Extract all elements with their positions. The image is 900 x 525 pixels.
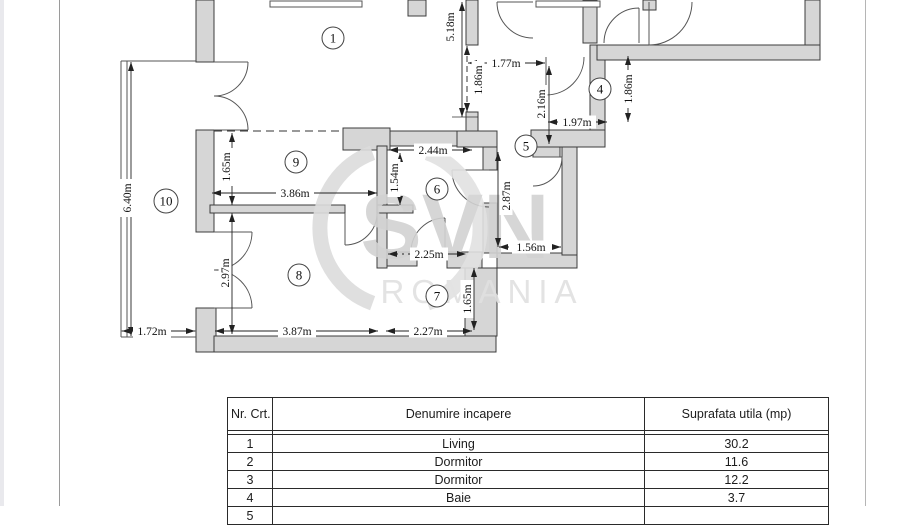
- cell-name: Dormitor: [273, 471, 645, 489]
- dimension-label: 1.77m: [491, 58, 520, 70]
- cell-area: 3.7: [645, 489, 829, 507]
- cell-name: Living: [273, 435, 645, 453]
- room-number-1: 1: [322, 27, 344, 49]
- cell-name: Baie: [273, 489, 645, 507]
- dimension: 1.86m: [464, 46, 485, 112]
- room-number-6: 6: [426, 178, 448, 200]
- room-number-9: 9: [285, 151, 307, 173]
- cell-area: 30.2: [645, 435, 829, 453]
- header-suprafata: Suprafata utila (mp): [645, 398, 829, 431]
- table-row: 4 Baie 3.7: [228, 489, 829, 507]
- watermark-region: ROMANIA: [380, 273, 583, 310]
- dimension-label: 5.18m: [445, 12, 457, 41]
- cell-name: Dormitor: [273, 453, 645, 471]
- header-nr-crt: Nr. Crt.: [228, 398, 273, 431]
- svg-text:5: 5: [523, 139, 530, 154]
- svg-text:4: 4: [597, 82, 604, 97]
- cell-nr: 2: [228, 453, 273, 471]
- svg-text:7: 7: [434, 289, 441, 304]
- cell-area: 11.6: [645, 453, 829, 471]
- cell-nr: 4: [228, 489, 273, 507]
- dimension-label: 1.86m: [473, 65, 485, 94]
- door-top-corridor: [604, 8, 639, 43]
- svg-text:9: 9: [293, 155, 300, 170]
- svg-text:10: 10: [160, 194, 173, 209]
- door-room4: [546, 57, 584, 95]
- cell-area: [645, 507, 829, 525]
- cell-name: [273, 507, 645, 525]
- table-header-row: Nr. Crt. Denumire incapere Suprafata uti…: [228, 398, 829, 431]
- room-number-8: 8: [288, 264, 310, 286]
- dimension-label: 1.56m: [516, 242, 545, 254]
- dimension-label: 1.65m: [221, 152, 233, 181]
- table-row: 2 Dormitor 11.6: [228, 453, 829, 471]
- room-number-7: 7: [426, 285, 448, 307]
- dimension-label: 2.27m: [413, 326, 442, 338]
- double-door-living: [214, 62, 248, 130]
- dimension-label: 2.16m: [536, 89, 548, 118]
- svn-watermark: SVN ROMANIA: [320, 153, 584, 310]
- dimension: 3.86m: [212, 187, 377, 201]
- room-number-4: 4: [589, 78, 611, 100]
- room-number-10: 10: [154, 189, 178, 213]
- table-row: 1 Living 30.2: [228, 435, 829, 453]
- dimension-label: 2.97m: [220, 258, 232, 287]
- dimension-label: 1.65m: [462, 284, 474, 313]
- page-left-margin: [0, 0, 4, 506]
- room-number-5: 5: [515, 135, 537, 157]
- dimension: 2.97m: [219, 213, 236, 334]
- dimension-label: 2.25m: [414, 249, 443, 261]
- svg-text:1: 1: [330, 31, 337, 46]
- dimension: 1.65m: [220, 133, 236, 205]
- dimension-label: 1.54m: [389, 163, 401, 192]
- table-row: 3 Dormitor 12.2: [228, 471, 829, 489]
- cell-nr: 3: [228, 471, 273, 489]
- cell-nr: 5: [228, 507, 273, 525]
- header-denumire: Denumire incapere: [273, 398, 645, 431]
- furniture-layer: [270, 1, 600, 7]
- cell-nr: 1: [228, 435, 273, 453]
- dimension-label: 2.87m: [501, 181, 513, 210]
- page-edge-left: [59, 0, 60, 506]
- table-row: 5: [228, 507, 829, 525]
- dimension-label: 1.86m: [623, 74, 635, 103]
- dimension-label: 3.86m: [280, 188, 309, 200]
- dimension-label: 2.44m: [418, 145, 447, 157]
- svg-text:6: 6: [434, 182, 441, 197]
- cell-area: 12.2: [645, 471, 829, 489]
- document-page: SVN ROMANIA 5.18m1.77m1.86m2.16m1.97m1.8…: [0, 0, 900, 506]
- dimension: 5.18m: [444, 2, 466, 117]
- svg-text:8: 8: [296, 268, 303, 283]
- door-top-left: [497, 2, 533, 38]
- dimension-label: 1.72m: [137, 326, 166, 338]
- dimension-label: 6.40m: [122, 183, 134, 212]
- page-edge-right: [865, 0, 866, 506]
- dimension-label: 3.87m: [282, 326, 311, 338]
- dimension-label: 1.97m: [562, 117, 591, 129]
- dimension: 1.86m: [622, 56, 636, 122]
- dimension: 1.72m: [122, 325, 195, 339]
